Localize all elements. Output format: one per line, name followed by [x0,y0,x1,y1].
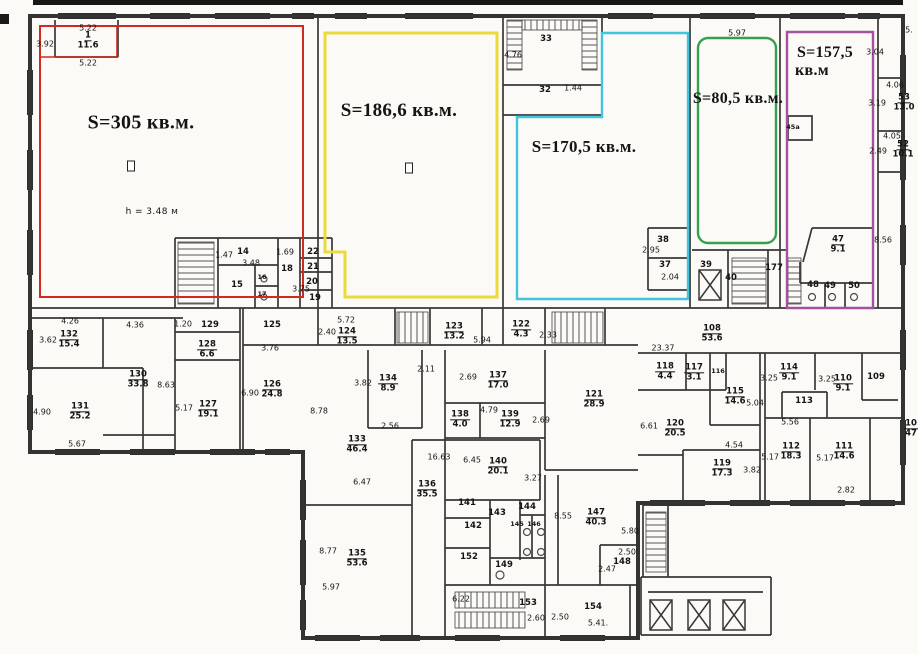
scan-mark [0,14,9,24]
floor-plan: 111.613215.413033.813125.21286.612719.11… [0,0,918,654]
floor-plan-drawing [0,0,918,654]
scan-edge [33,0,903,5]
